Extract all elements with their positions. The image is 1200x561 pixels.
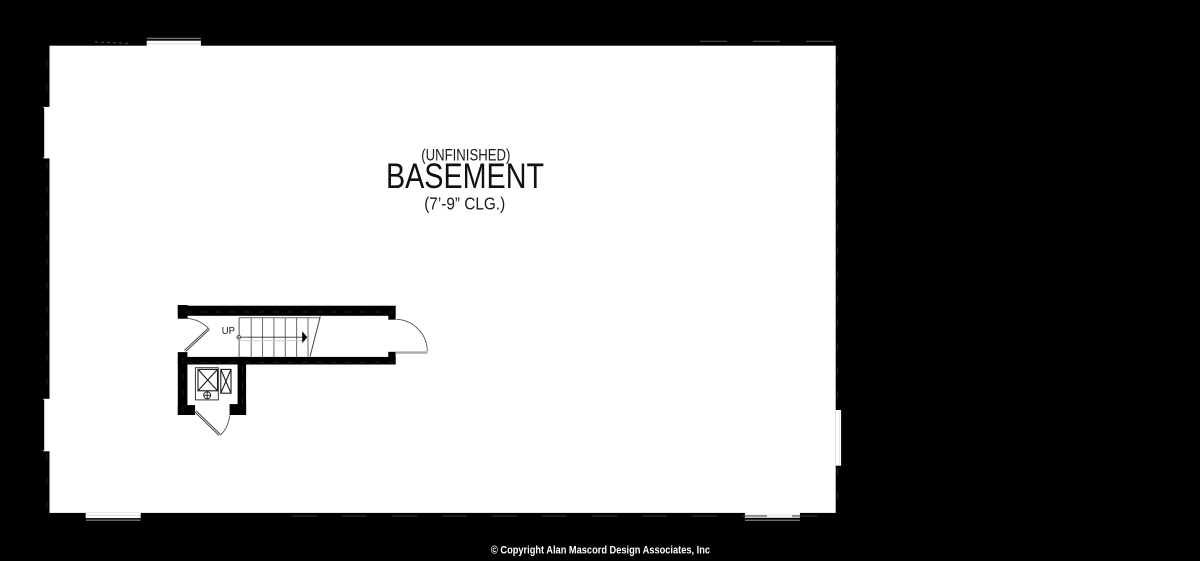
svg-text:BASEMENT: BASEMENT	[386, 157, 544, 196]
svg-text:(7’-9” CLG.): (7’-9” CLG.)	[424, 193, 505, 213]
svg-text:UP: UP	[222, 326, 235, 337]
svg-text:© Copyright Alan Mascord Desig: © Copyright Alan Mascord Design Associat…	[491, 545, 710, 557]
